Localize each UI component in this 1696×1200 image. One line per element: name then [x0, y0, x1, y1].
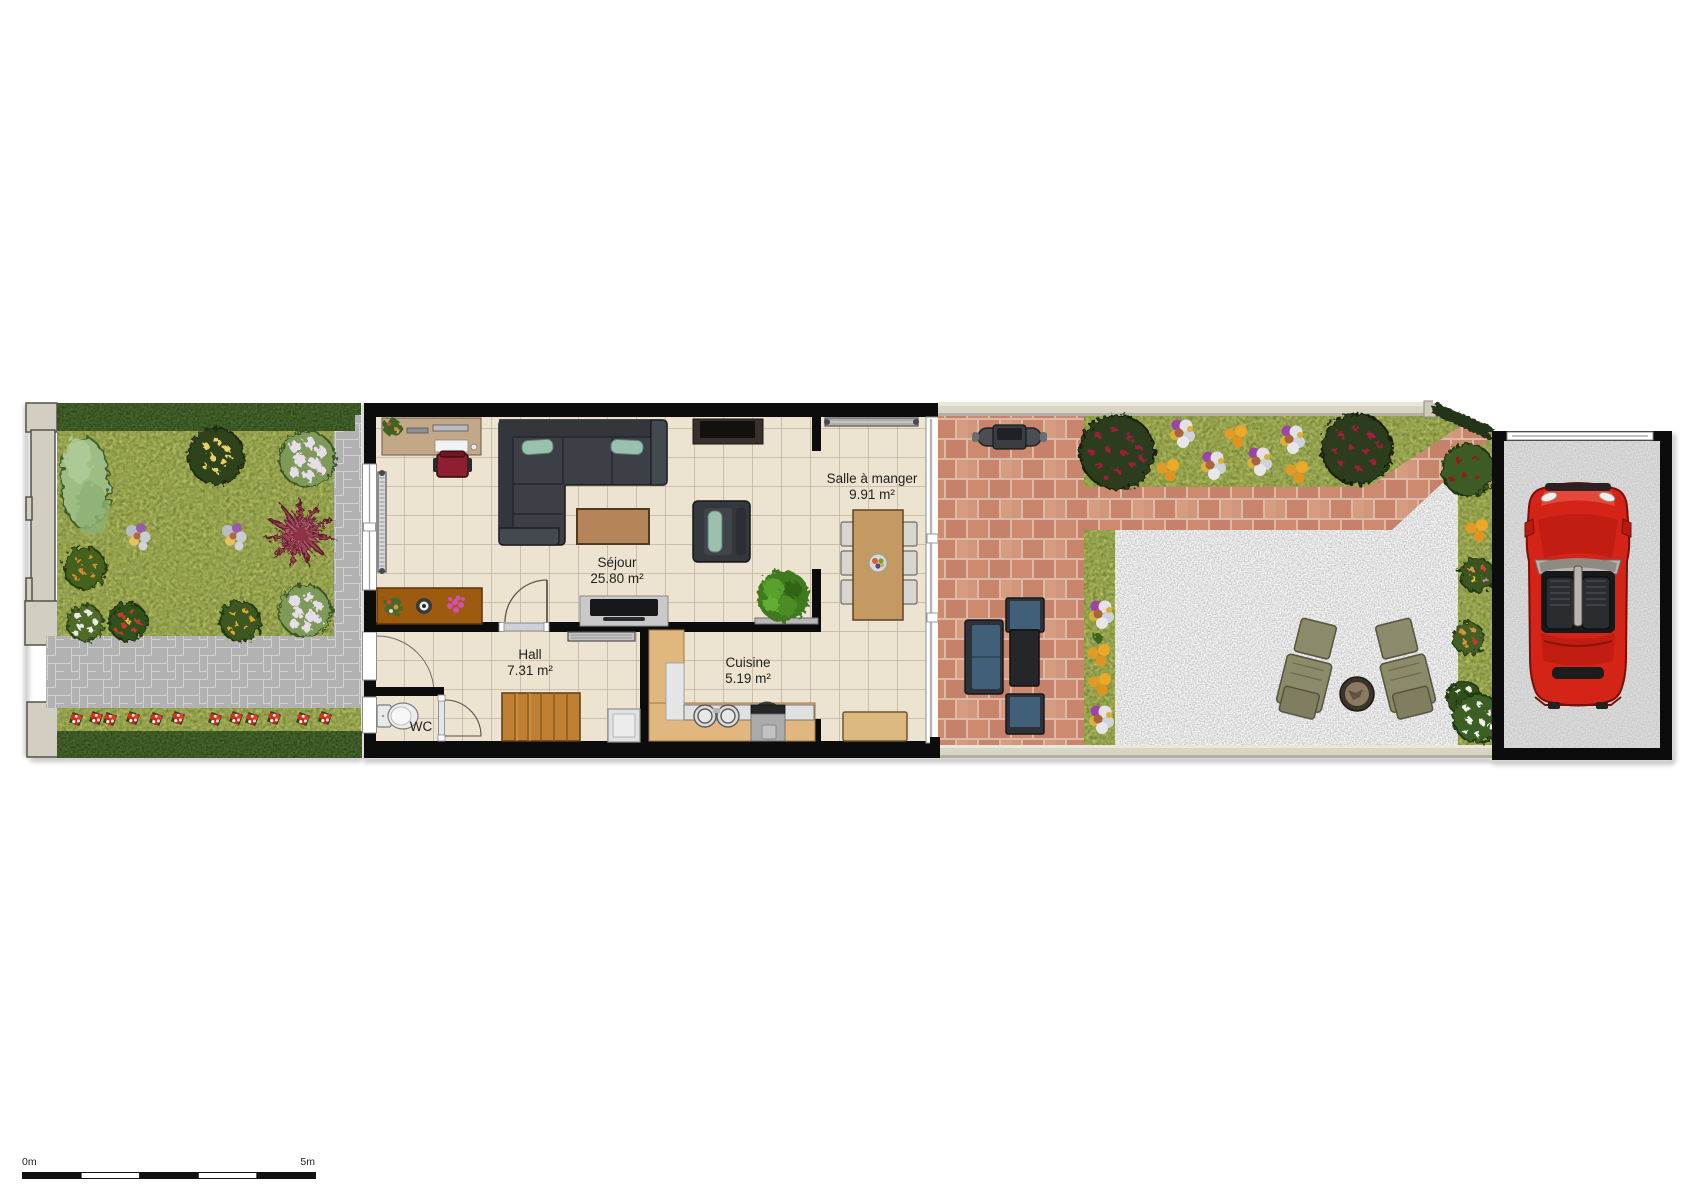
svg-text:0m: 0m: [22, 1156, 37, 1168]
svg-text:5.19 m²: 5.19 m²: [725, 671, 771, 686]
svg-text:Hall: Hall: [518, 647, 541, 662]
svg-text:7.31 m²: 7.31 m²: [507, 663, 553, 678]
svg-text:Cuisine: Cuisine: [725, 655, 770, 670]
svg-text:Salle à manger: Salle à manger: [827, 471, 918, 486]
svg-text:25.80 m²: 25.80 m²: [590, 571, 644, 586]
svg-text:9.91 m²: 9.91 m²: [849, 487, 895, 502]
svg-text:Séjour: Séjour: [597, 555, 637, 570]
svg-text:WC: WC: [410, 719, 433, 734]
svg-text:5m: 5m: [300, 1156, 315, 1168]
